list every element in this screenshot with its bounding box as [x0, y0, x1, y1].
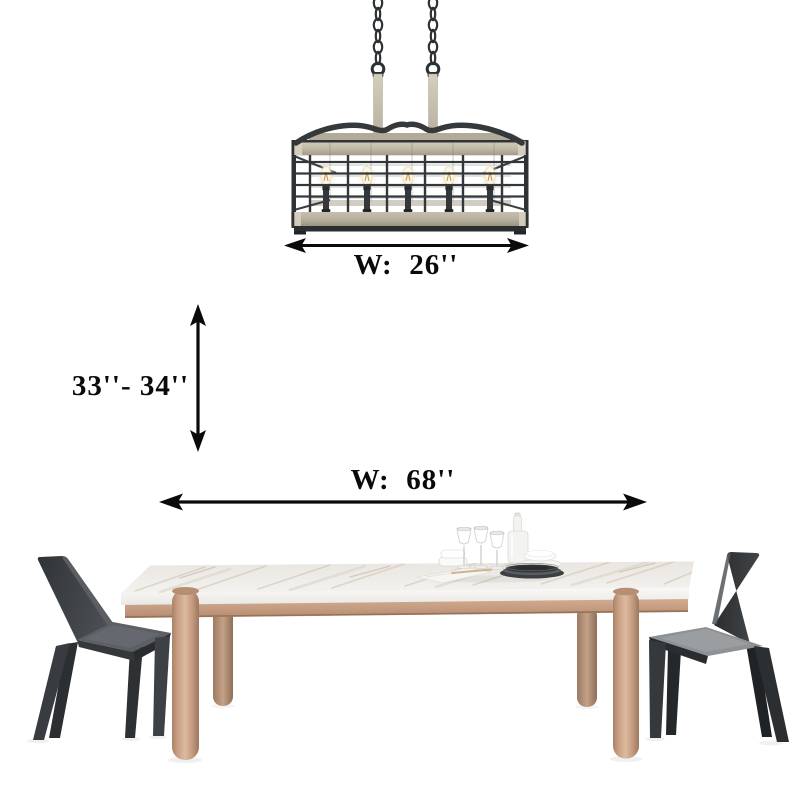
- table-leg-back-right: [577, 606, 597, 707]
- table-leg-front-left: [172, 589, 199, 760]
- product-dimension-diagram: W: 26'' 33''- 34'' W: 68'': [0, 0, 800, 800]
- scene-canvas: W: 26'' 33''- 34'' W: 68'': [0, 0, 800, 800]
- table-leg-back-left: [213, 607, 233, 706]
- chandelier-width-label: W: 26'': [354, 249, 459, 281]
- chandelier-cage: [291, 124, 529, 234]
- table-width-label: W: 68'': [351, 464, 456, 496]
- hanging-height-label: 33''- 34'': [72, 370, 189, 402]
- ramekin-stack: [439, 550, 467, 566]
- table-leg-front-right: [613, 590, 639, 759]
